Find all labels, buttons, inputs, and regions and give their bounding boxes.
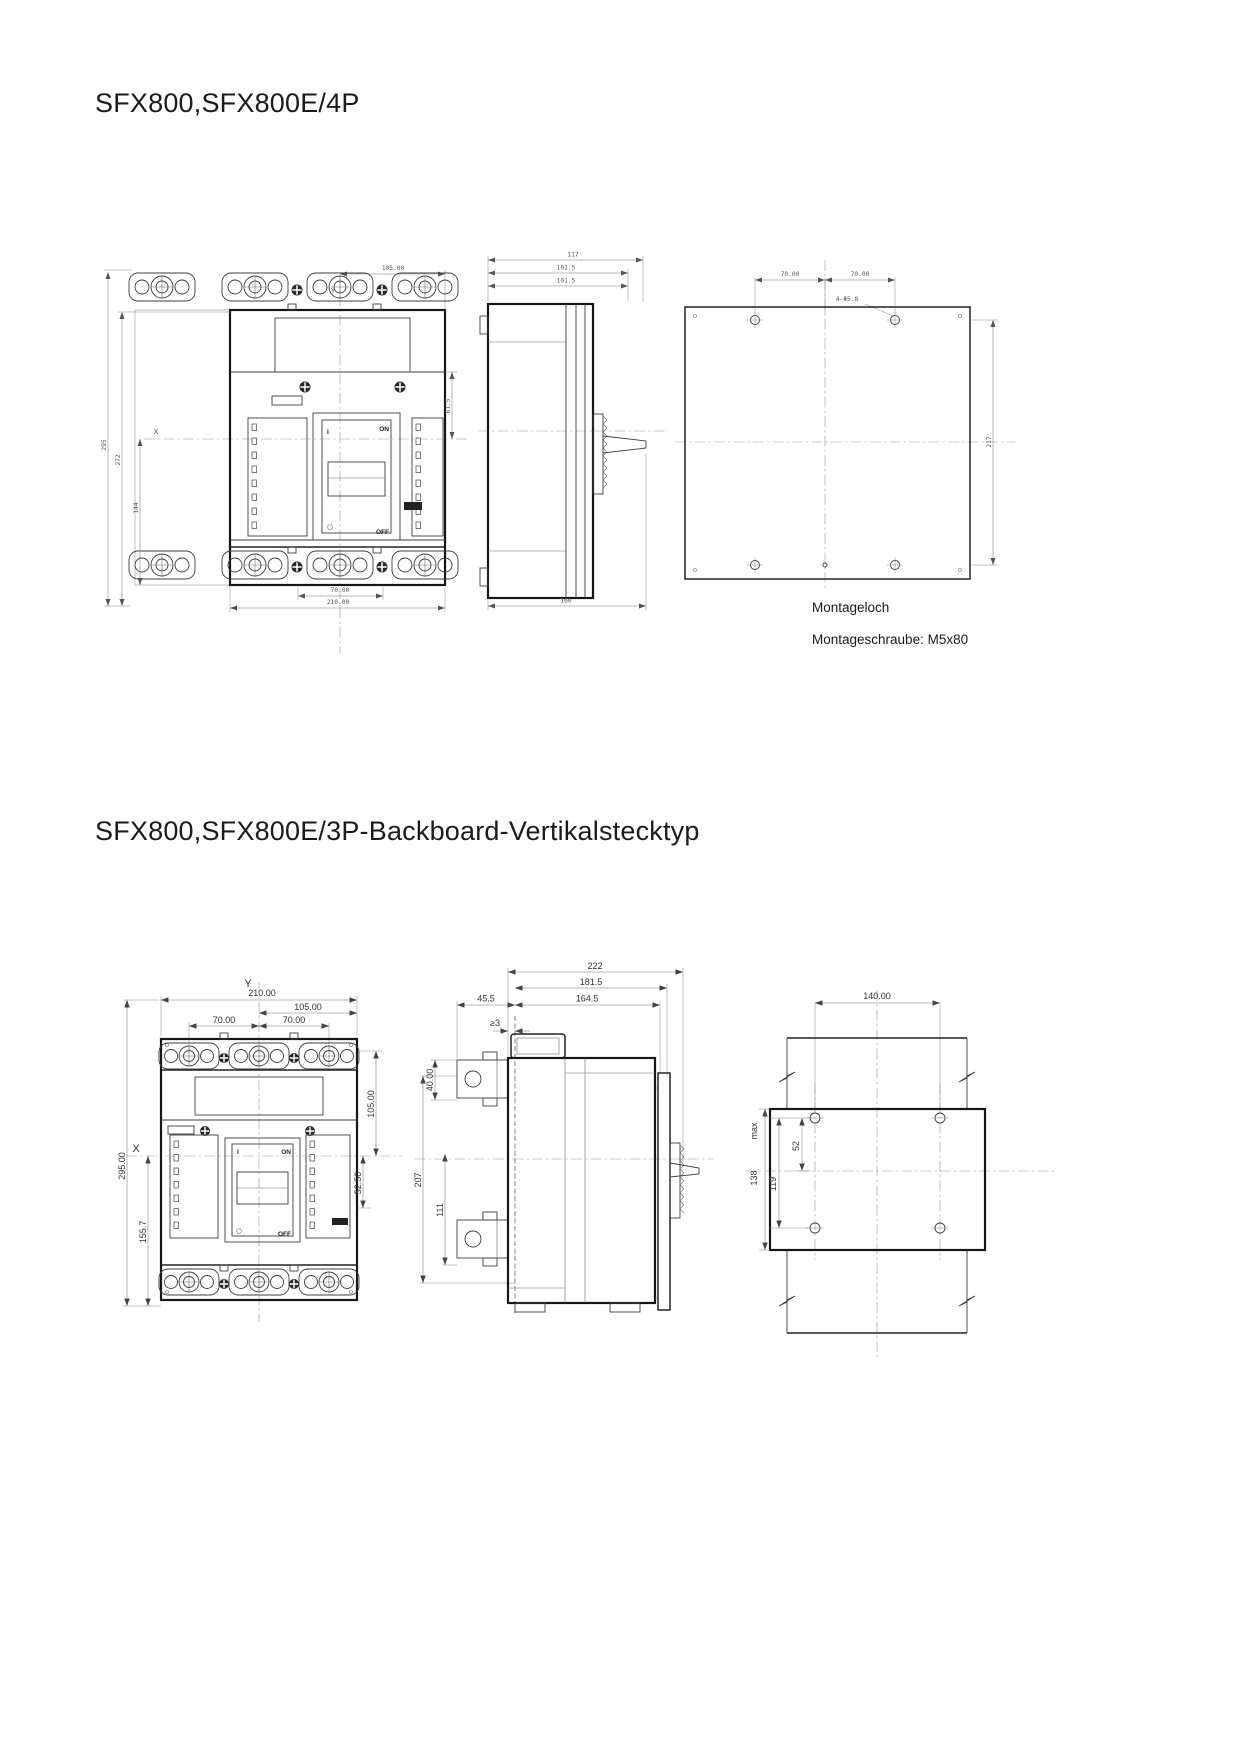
stab-connector-bottom [457, 1212, 508, 1266]
axis-x-label: X [154, 428, 159, 436]
toggle-area: I ON OFF [248, 413, 443, 540]
stab-connector-top [457, 1052, 508, 1106]
dim-label: 52 [791, 1141, 801, 1151]
rating-label [168, 1126, 194, 1134]
dim-label: 70.00 [331, 587, 350, 594]
dim-label: 155.7 [138, 1221, 148, 1244]
upper-recess [275, 318, 410, 372]
dim-width-140: 140.00 [815, 991, 940, 1111]
dim-label: 70.00 [851, 271, 870, 278]
dim-label: 144 [133, 502, 140, 513]
mounting-plate-4p-drawing: 70.00 70.00 4-Φ5.8 217 [675, 252, 1015, 592]
dims-left: 40.00 207 111 [413, 1060, 515, 1283]
section2-title: SFX800,SFX800E/3P-Backboard-Vertikalstec… [95, 816, 700, 847]
dim-label: 181.5 [580, 977, 603, 987]
toggle-on-label: ON [379, 426, 389, 433]
dim-bottom: 70.00 210.00 [230, 587, 445, 612]
off-dot [328, 525, 333, 530]
dim-label: 70.00 [781, 271, 800, 278]
dim-label: 295 [101, 439, 108, 450]
dim-label: 295.00 [117, 1152, 127, 1180]
dim-label: ≥3 [490, 1018, 500, 1028]
dim-label: 272 [115, 454, 122, 465]
accessory-teeth [593, 414, 607, 494]
front-view-4p-drawing: Y X 105.00 [100, 250, 470, 670]
dim-label: 52.50 [353, 1172, 363, 1195]
dim-label: 119 [768, 1177, 778, 1191]
interlock-arm [670, 1163, 699, 1177]
dim-label: 222 [587, 961, 602, 971]
datasheet-page: SFX800,SFX800E/4P Y X 105.00 [0, 0, 1240, 1754]
dim-label: max [749, 1122, 759, 1140]
face-screw [300, 382, 311, 393]
hole-size-note: 4-Φ5.8 [836, 296, 859, 303]
dim-label: 140.00 [863, 991, 891, 1001]
centerlines [144, 276, 468, 654]
dims-top: 222 181.5 45.5 164.5 ≥3 [457, 961, 683, 1161]
side-view-3p-drawing: 222 181.5 45.5 164.5 ≥3 40.00 207 111 [415, 958, 715, 1333]
rating-label [272, 396, 302, 405]
toggle-off-label: OFF [376, 529, 389, 536]
dim-label: 210.00 [327, 599, 350, 606]
dim-label: 210.00 [248, 988, 276, 998]
dim-label: 105.00 [366, 1090, 376, 1118]
rear-base-plate [658, 1073, 670, 1310]
neutral-pole-ghost [129, 273, 230, 585]
face-screw [200, 1126, 210, 1136]
dim-label: 105.00 [382, 265, 405, 272]
front-view-3p-drawing: Y X 210.00 105.00 70.00 70.00 [110, 970, 410, 1335]
axis-x-label: X [132, 1143, 140, 1155]
dim-label: 207 [413, 1172, 423, 1187]
face-screw [395, 382, 406, 393]
toggle-area: I ON OFF [170, 1135, 350, 1242]
dim-label: 117 [567, 252, 578, 259]
dim-bottom-160: 160 [488, 453, 646, 610]
mounting-holes [806, 1113, 949, 1233]
dim-label: 101.5 [557, 278, 576, 285]
accessory-teeth [670, 1143, 684, 1218]
note-montageloch: Montageloch [812, 600, 889, 615]
dim-left: 295 272 144 [101, 270, 232, 606]
dim-vertical-217: 217 [972, 320, 998, 565]
brand-plate [332, 1218, 348, 1225]
dim-label: 70.00 [283, 1015, 306, 1025]
interlock-arm [603, 436, 646, 453]
dim-label: 111 [435, 1203, 445, 1217]
dim-depth: 117 101.5 101.5 [488, 252, 643, 303]
handle-escutcheon [511, 1034, 565, 1058]
toggle-i-label: I [327, 429, 329, 436]
brand-plate [404, 502, 422, 510]
section1-title: SFX800,SFX800E/4P [95, 88, 360, 119]
dim-label: 164.5 [576, 994, 599, 1004]
dim-top-105: 105.00 [340, 265, 445, 308]
toggle-i-label: I [237, 1149, 239, 1156]
dim-label: 160 [560, 598, 571, 605]
plate-body [685, 307, 970, 579]
toggle-handle [328, 462, 385, 496]
side-view-4p-drawing: 117 101.5 101.5 160 [478, 246, 668, 621]
dim-label: 61.5 [445, 398, 452, 413]
note-montageschraube: Montageschraube: M5x80 [812, 632, 968, 647]
dim-label: 217 [986, 436, 993, 447]
toggle-on-label: ON [281, 1149, 291, 1156]
dim-label: 101.5 [557, 265, 576, 272]
off-dot [237, 1229, 242, 1234]
breaker-side-body [480, 304, 646, 598]
dim-label: 40.00 [425, 1069, 435, 1092]
dim-label: 138 [749, 1170, 759, 1185]
dim-label: 45.5 [477, 994, 495, 1004]
mounting-panel-3p-drawing: 140.00 max 138 119 52 [745, 988, 1055, 1360]
dims-left: max 138 119 52 [749, 1109, 809, 1250]
breaker-side-body [508, 1034, 699, 1312]
face-screw [305, 1126, 315, 1136]
toggle-off-label: OFF [278, 1231, 291, 1238]
dim-right-inner: 61.5 [445, 372, 457, 439]
dim-label: 105.00 [294, 1002, 322, 1012]
dim-label: 70.00 [213, 1015, 236, 1025]
